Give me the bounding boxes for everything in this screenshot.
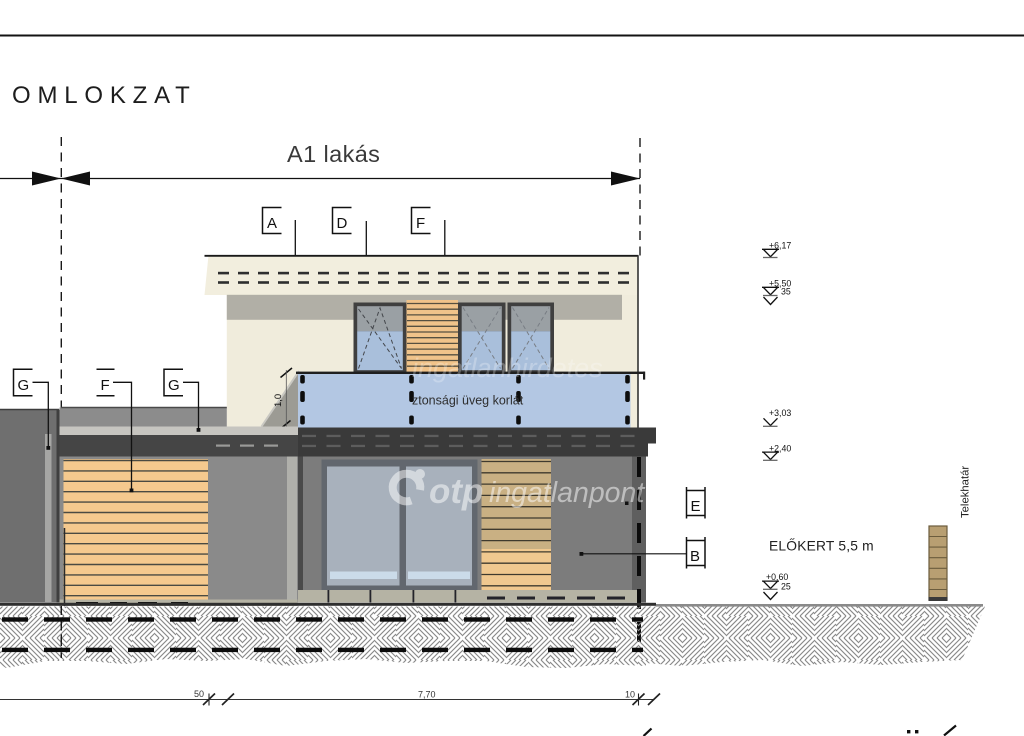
svg-text:10: 10	[625, 690, 635, 700]
svg-text:ELŐKERT 5,5 m: ELŐKERT 5,5 m	[769, 538, 874, 554]
svg-text:+3,03: +3,03	[769, 408, 791, 418]
svg-text:+2,40: +2,40	[769, 444, 791, 454]
svg-text:ingatlanhirdetes: ingatlanhirdetes	[412, 353, 603, 383]
svg-text:+0,60: +0,60	[766, 572, 788, 582]
svg-text:7,70: 7,70	[418, 690, 436, 700]
svg-text:B: B	[690, 548, 700, 565]
svg-text:otp: otp	[429, 472, 483, 511]
svg-text:Telekhatár: Telekhatár	[960, 466, 972, 518]
svg-text:35: 35	[781, 287, 791, 297]
svg-text:D: D	[337, 215, 348, 232]
svg-text:F: F	[101, 377, 110, 394]
svg-text:ingatlanpont: ingatlanpont	[489, 477, 645, 509]
svg-text:A: A	[267, 215, 277, 232]
svg-text:A1 lakás: A1 lakás	[287, 141, 380, 167]
svg-text:1,0: 1,0	[273, 394, 284, 407]
svg-text:OMLOKZAT: OMLOKZAT	[12, 82, 197, 109]
svg-text:G: G	[18, 377, 30, 394]
svg-text:E: E	[691, 498, 701, 515]
svg-text:25: 25	[781, 582, 791, 592]
svg-text:ztonsági üveg korlát: ztonsági üveg korlát	[412, 394, 524, 408]
svg-text:F: F	[416, 215, 425, 232]
svg-text:+6,17: +6,17	[769, 241, 791, 251]
svg-text:50: 50	[194, 689, 204, 699]
svg-text:G: G	[168, 377, 180, 394]
